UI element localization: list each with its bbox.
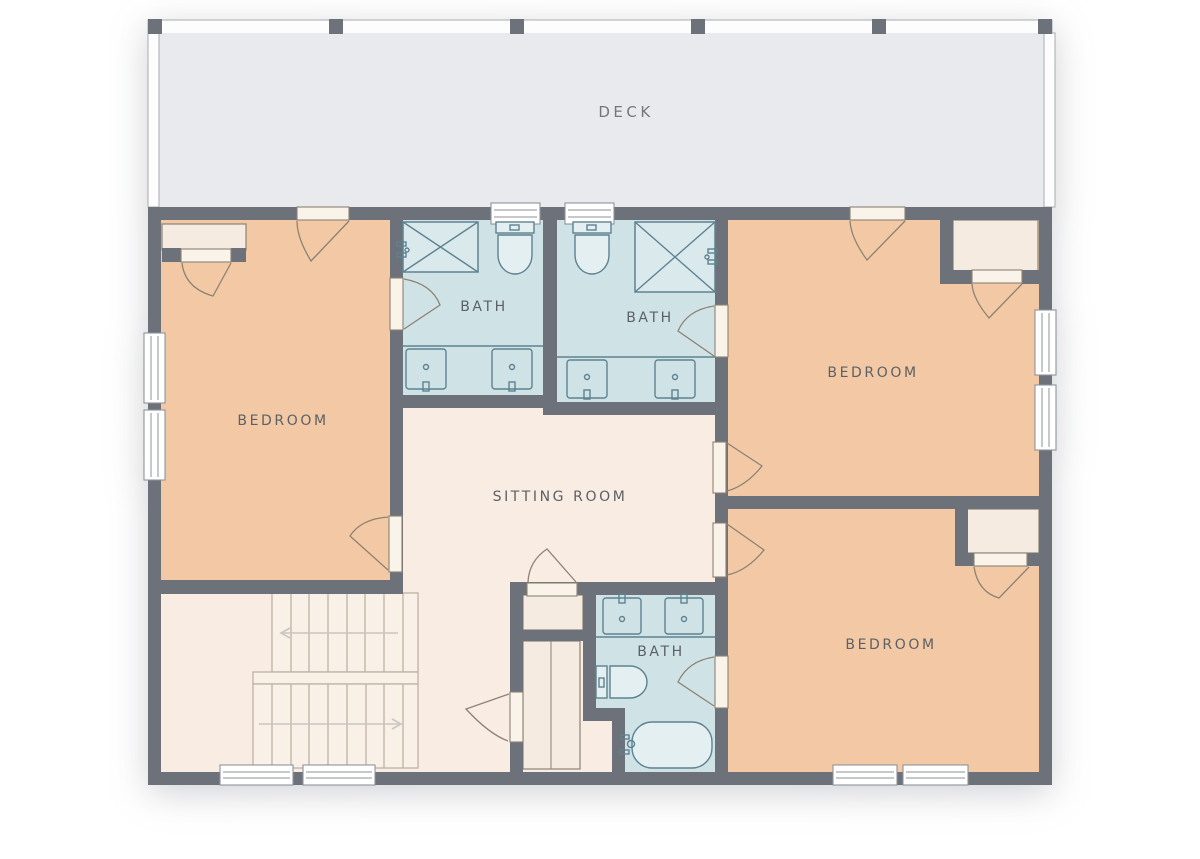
window xyxy=(220,765,293,785)
room-label-bedroom-top-right: BEDROOM xyxy=(827,365,918,381)
window xyxy=(903,765,968,785)
deck-railing-top xyxy=(148,20,1052,34)
toilet xyxy=(496,222,534,274)
staircase xyxy=(253,593,418,768)
window xyxy=(1035,385,1056,450)
closet-hall-wardrobe xyxy=(523,641,580,769)
stairs-landing xyxy=(253,672,418,684)
deck-railing-left xyxy=(148,33,159,207)
shower xyxy=(635,222,717,292)
window xyxy=(144,333,165,403)
toilet xyxy=(596,666,647,698)
stairs-lower-flight xyxy=(253,684,418,768)
deck-railing-right xyxy=(1044,33,1055,207)
room-label-bath-top-left: BATH xyxy=(460,299,508,315)
window xyxy=(565,203,614,224)
closet-bedroom-top-right xyxy=(953,220,1038,272)
room-label-bedroom-left: BEDROOM xyxy=(237,413,328,429)
floor-plan-drawing xyxy=(0,0,1200,859)
window xyxy=(1035,310,1056,375)
closet-bedroom-bottom-right xyxy=(966,509,1039,553)
room-label-bath-bottom: BATH xyxy=(637,644,685,660)
floor-plan-page: DECK BEDROOM BATH BATH BEDROOM SITTING R… xyxy=(0,0,1200,859)
closet-sitting-room xyxy=(523,595,583,630)
room-label-bedroom-bottom-right: BEDROOM xyxy=(845,637,936,653)
toilet xyxy=(573,222,611,274)
window xyxy=(303,765,375,785)
room-label-bath-top-right: BATH xyxy=(626,310,674,326)
closet-bedroom-left xyxy=(162,224,246,250)
shower xyxy=(397,222,478,272)
room-label-sitting-room: SITTING ROOM xyxy=(493,489,628,505)
room-label-deck: DECK xyxy=(598,103,653,121)
window xyxy=(144,410,165,480)
bedroom-left-floor xyxy=(161,220,390,582)
window xyxy=(833,765,897,785)
window xyxy=(491,203,540,224)
